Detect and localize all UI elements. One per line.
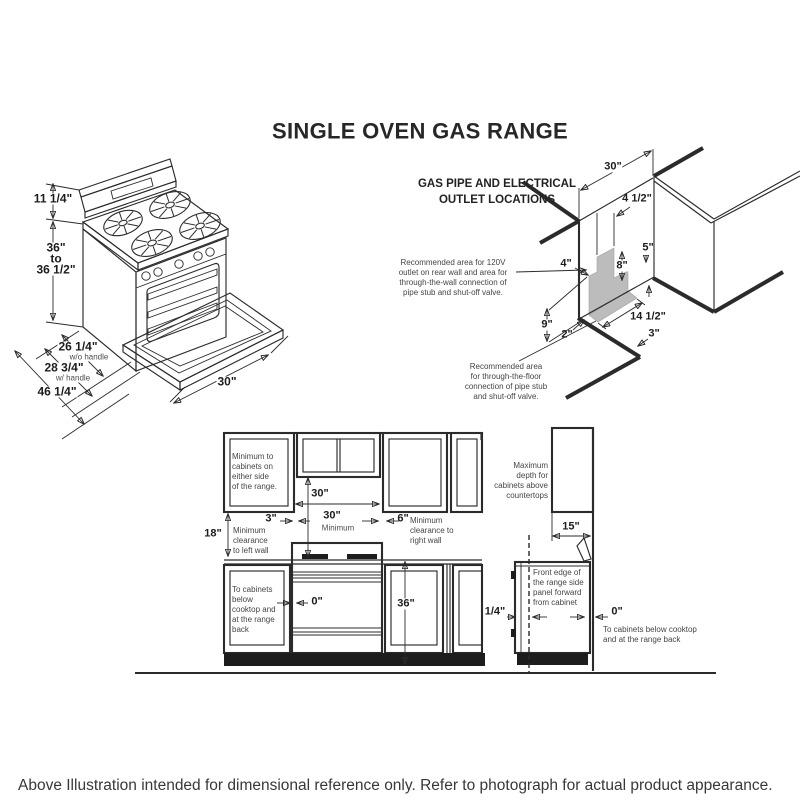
gas-diagram-heading: GAS PIPE AND ELECTRICAL OUTLET LOCATIONS [418,176,576,208]
page-title: SINGLE OVEN GAS RANGE [272,126,568,137]
dim-side-15: 15" [561,522,580,533]
dim-gas-5: 5" [641,243,654,254]
dim-backsplash-height: 11 1/4" [33,194,73,205]
note-floor-connection: Recommended area for through-the-floor c… [451,362,561,402]
note-front-edge: Front edge of the range side panel forwa… [533,568,584,608]
dim-gas-14half: 14 1/2" [629,312,667,323]
dim-depth-with-handle: 28 3/4" [43,363,84,374]
dim-gas-4: 4" [559,259,572,270]
dim-side-quarter: 1/4" [484,607,507,618]
note-left-wall: Minimum clearance to left wall [233,526,269,556]
dim-side-0: 0" [610,607,623,618]
dim-gas-8: 8" [615,261,628,272]
note-right-wall: Minimum clearance to right wall [410,516,454,546]
dim-gas-30: 30" [603,162,622,173]
dim-gas-2: 2" [560,330,573,341]
note-below-cooktop-side: To cabinets below cooktop and at the ran… [603,625,697,645]
reference-caption: Above Illustration intended for dimensio… [18,777,773,795]
dim-range-width: 30" [216,377,237,388]
dim-front-30-width: 30" [310,489,329,500]
dim-depth-with-handle-note: w/ handle [56,374,90,383]
note-max-depth: Maximum depth for cabinets above counter… [462,461,548,501]
dim-depth-wo-handle: 26 1/4" [57,342,98,353]
dim-front-30-min-note: Minimum [322,524,354,533]
dim-depth-door-open: 46 1/4" [36,387,77,398]
dim-front-3: 3" [264,514,277,525]
note-below-cooktop: To cabinets below cooktop and at the ran… [232,585,276,635]
dim-gas-4half: 4 1/2" [621,194,653,205]
dim-front-30-vertical: 30" [322,511,341,522]
dim-front-36: 36" [396,599,415,610]
note-wall-outlet: Recommended area for 120V outlet on rear… [389,258,517,298]
dim-gas-3: 3" [647,329,660,340]
spec-sheet: SINGLE OVEN GAS RANGE 11 1/4" 36" to 36 … [0,0,800,800]
dim-cooktop-height: 36" to 36 1/2" [35,243,76,276]
dim-front-18: 18" [203,529,222,540]
dim-front-6: 6" [396,514,409,525]
dim-front-0: 0" [310,597,323,608]
note-side-cabinets: Minimum to cabinets on either side of th… [232,452,277,492]
dim-gas-9: 9" [540,320,553,331]
